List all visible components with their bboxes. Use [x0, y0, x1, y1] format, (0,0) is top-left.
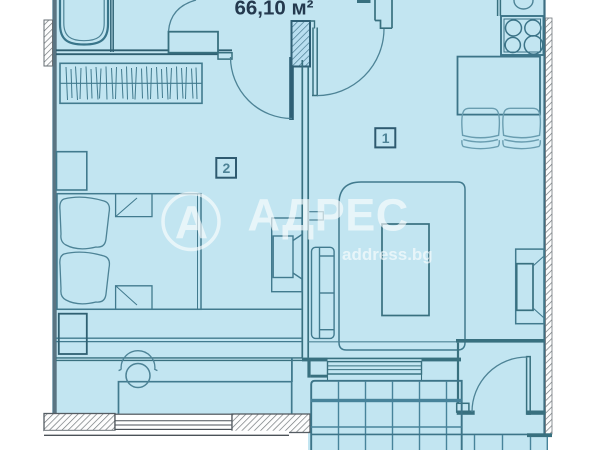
svg-text:address.bg: address.bg [342, 245, 433, 264]
svg-text:АДРЕС: АДРЕС [248, 190, 409, 241]
svg-text:А: А [175, 196, 208, 248]
svg-text:2: 2 [223, 160, 231, 176]
svg-text:1: 1 [382, 130, 390, 146]
svg-text:66,10 м²: 66,10 м² [235, 0, 314, 20]
